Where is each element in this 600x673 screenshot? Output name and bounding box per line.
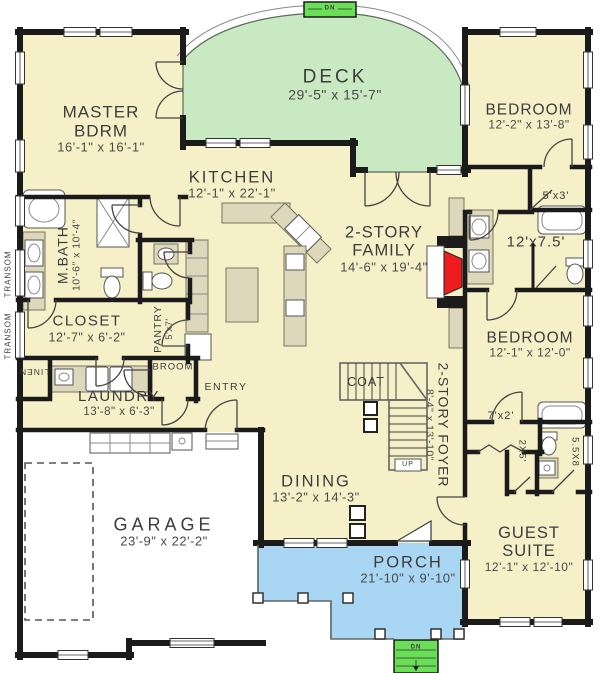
label-closet-2x5: 2X5' <box>516 440 527 463</box>
label-bath-12x7: 12'x7.5' <box>507 235 566 252</box>
label-closet-7x2: 7'x2' <box>488 410 515 422</box>
column <box>364 419 377 432</box>
label-porch-steps-dn: DN <box>411 645 422 652</box>
room-label-kitchen: KITCHEN 12'-1" x 22'-1" <box>188 168 275 201</box>
room-label-garage: GARAGE 23'-9" x 22'-2" <box>113 515 214 550</box>
label-transom-2: TRANSOM <box>5 313 14 360</box>
room-label-laundry: LAUNDRY 13'-8" x 6'-3" <box>78 389 160 419</box>
label-linen: LINEN <box>19 366 49 376</box>
label-broom: BROOM <box>153 363 194 374</box>
column <box>350 506 365 520</box>
kitchen-island <box>226 268 258 322</box>
room-label-pantry: PANTRY 5'x7' <box>153 305 175 353</box>
label-bath-5-5x8: 5.5X8 <box>569 437 580 467</box>
label-entry: ENTRY <box>205 382 248 394</box>
column <box>350 524 365 538</box>
fireplace-icon <box>444 251 462 295</box>
label-stairs-up: UP <box>402 461 414 469</box>
room-label-mbath: M.BATH 10'-6" x 10'-4" <box>55 219 82 291</box>
label-closet-5x3: 5'x3' <box>543 190 570 202</box>
toilet-icon <box>143 272 152 290</box>
water-heater-icon <box>172 433 192 450</box>
room-label-porch: PORCH 21'-10" x 9'-10" <box>360 553 455 586</box>
column <box>364 402 377 415</box>
floor-plan: MASTER BDRM 16'-1" x 16'-1" DECK 29'-5" … <box>0 0 600 673</box>
room-label-dining: DINING 13'-2" x 14'-3" <box>272 472 359 505</box>
room-label-deck: DECK 29'-5" x 15'-7" <box>288 67 382 104</box>
room-label-foyer: 2-STORY FOYER 8'-4" x 13'-10" <box>423 362 450 487</box>
garage-side-door <box>170 639 214 648</box>
label-deck-steps-dn: DN <box>325 6 336 13</box>
room-label-bedroom-mid: BEDROOM 12'-1" x 12'-0" <box>486 330 573 361</box>
room-label-master-bdrm: MASTER BDRM 16'-1" x 16'-1" <box>57 103 144 156</box>
room-label-guest-suite: GUEST SUITE 12'-1" x 12'-10" <box>485 524 573 574</box>
room-label-bedroom-top: BEDROOM 12'-2" x 13'-8" <box>485 102 572 133</box>
room-label-closet: CLOSET 12'-7" x 6'-2" <box>49 314 126 345</box>
room-label-family: 2-STORY FAMILY 14'-6" x 19'-4" <box>340 223 427 274</box>
label-transom-1: TRANSOM <box>5 251 14 298</box>
label-coat: COAT <box>347 375 385 389</box>
